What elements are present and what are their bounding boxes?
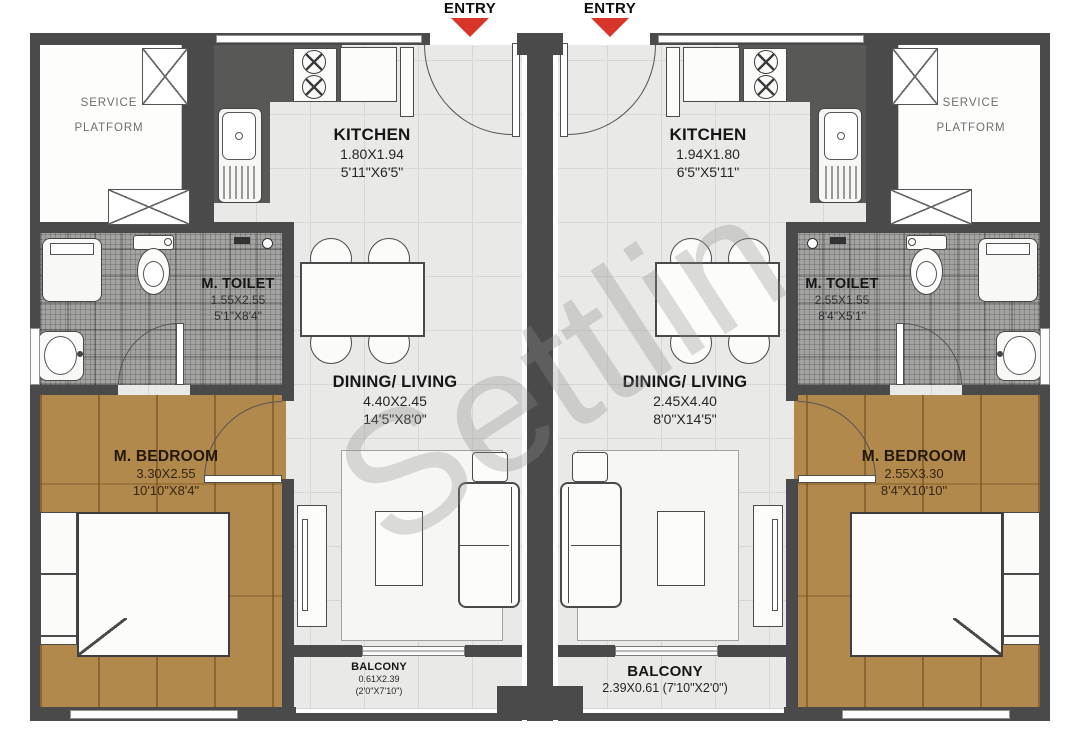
sofa-backrest-line bbox=[511, 487, 512, 603]
entry-arrow-icon bbox=[451, 18, 489, 37]
sofa-icon bbox=[560, 482, 622, 608]
dining-living-label: DINING/ LIVING 2.45X4.40 8'0"X14'5" bbox=[600, 373, 770, 428]
tv-screen bbox=[302, 519, 308, 611]
wall bbox=[40, 385, 118, 395]
balcony-sliding-door-icon bbox=[362, 646, 465, 656]
basin-tap-icon bbox=[997, 351, 1003, 357]
dining-living-label: DINING/ LIVING 4.40X2.45 14'5"X8'0" bbox=[310, 373, 480, 428]
kitchen-platform bbox=[683, 47, 740, 102]
shower-tray-icon bbox=[42, 238, 102, 302]
balcony-sliding-door-icon bbox=[615, 646, 718, 656]
balcony-label: BALCONY 0.61X2.39 (2'0"X7'10") bbox=[322, 661, 436, 697]
balcony-rail bbox=[558, 713, 786, 721]
party-wall bbox=[497, 686, 583, 720]
basin-bowl bbox=[1003, 336, 1036, 375]
stove-icon bbox=[293, 48, 337, 102]
floor-plan: SERVICE PLATFORM KITCHEN 1.80X1.94 5'11"… bbox=[0, 0, 1080, 741]
kitchen-cabinet bbox=[400, 47, 414, 117]
apartment-unit-left: SERVICE PLATFORM KITCHEN 1.80X1.94 5'11"… bbox=[30, 33, 522, 721]
entry-label: ENTRY bbox=[578, 0, 642, 17]
kitchen-label: KITCHEN 1.94X1.80 6'5"X5'11" bbox=[628, 125, 788, 181]
burner-icon bbox=[302, 50, 326, 74]
drain-board bbox=[223, 166, 256, 199]
entry-door-leaf bbox=[512, 43, 520, 137]
tv-unit-icon bbox=[297, 505, 327, 627]
party-wall bbox=[517, 33, 563, 55]
entry-label: ENTRY bbox=[438, 0, 502, 17]
wall bbox=[718, 645, 786, 657]
toilet-label: M. TOILET 1.55X2.55 5'1"X8'4" bbox=[182, 276, 294, 324]
basin-tap-icon bbox=[77, 351, 83, 357]
bed-fold-corner bbox=[79, 618, 127, 655]
bed-fold-corner bbox=[953, 618, 1001, 655]
burner-icon bbox=[302, 75, 326, 99]
shower-tray-icon bbox=[978, 238, 1038, 302]
wall bbox=[465, 645, 522, 657]
towel-rail-icon bbox=[830, 237, 846, 244]
sofa-icon bbox=[458, 482, 520, 608]
wall bbox=[798, 385, 890, 395]
bedside-unit-icon bbox=[40, 512, 77, 645]
bedroom-label: M. BEDROOM 2.55X3.30 8'4"X10'10" bbox=[812, 448, 1016, 500]
coffee-table-icon bbox=[657, 511, 705, 586]
side-table-icon bbox=[472, 452, 508, 482]
window-icon bbox=[70, 710, 238, 719]
shower-ledge bbox=[986, 243, 1030, 255]
shower-knob-icon bbox=[262, 238, 273, 249]
sink-drain bbox=[837, 132, 845, 140]
dining-table-icon bbox=[300, 262, 425, 337]
wall bbox=[294, 645, 362, 657]
sofa-cushion-line bbox=[460, 545, 509, 546]
shower-knob-icon bbox=[807, 238, 818, 249]
flush-button-icon bbox=[908, 238, 916, 246]
window-icon bbox=[216, 35, 422, 43]
basin-bowl bbox=[44, 336, 77, 375]
party-wall bbox=[527, 33, 553, 721]
entry-arrow-icon bbox=[591, 18, 629, 37]
kitchen-cabinet bbox=[666, 47, 680, 117]
bedroom-label: M. BEDROOM 3.30X2.55 10'10"X8'4" bbox=[64, 448, 268, 500]
kitchen-sink-icon bbox=[218, 108, 262, 203]
wall bbox=[558, 645, 615, 657]
tv-screen bbox=[772, 519, 778, 611]
wall bbox=[190, 385, 282, 395]
wall bbox=[786, 479, 798, 709]
burner-icon bbox=[754, 50, 778, 74]
flush-button-icon bbox=[164, 238, 172, 246]
toilet-label: M. TOILET 2.55X1.55 8'4"X5'1" bbox=[786, 276, 898, 324]
window-icon bbox=[658, 35, 864, 43]
stove-icon bbox=[743, 48, 787, 102]
balcony-label: BALCONY 2.39X0.61 (7'10"X2'0") bbox=[575, 663, 755, 698]
wall bbox=[282, 479, 294, 709]
toilet-bowl-inner bbox=[916, 261, 937, 287]
sink-drain bbox=[235, 132, 243, 140]
service-platform-label: SERVICE PLATFORM bbox=[912, 91, 1030, 142]
dining-table-icon bbox=[655, 262, 780, 337]
apartment-unit-right: SERVICE PLATFORM KITCHEN 1.94X1.80 6'5"X… bbox=[558, 33, 1050, 721]
kitchen-sink-icon bbox=[818, 108, 862, 203]
service-hatch-icon bbox=[108, 189, 190, 225]
kitchen-label: KITCHEN 1.80X1.94 5'11"X6'5" bbox=[292, 125, 452, 181]
tv-unit-icon bbox=[753, 505, 783, 627]
bedside-unit-icon bbox=[1003, 512, 1040, 645]
entry-door-leaf bbox=[560, 43, 568, 137]
sofa-backrest-line bbox=[568, 487, 569, 603]
sofa-cushion-line bbox=[571, 545, 620, 546]
service-hatch-icon bbox=[890, 189, 972, 225]
toilet-bowl-inner bbox=[143, 261, 164, 287]
window-icon bbox=[30, 328, 40, 385]
coffee-table-icon bbox=[375, 511, 423, 586]
shower-ledge bbox=[50, 243, 94, 255]
kitchen-platform bbox=[340, 47, 397, 102]
window-icon bbox=[842, 710, 1010, 719]
burner-icon bbox=[754, 75, 778, 99]
drain-board bbox=[824, 166, 857, 199]
window-icon bbox=[1040, 328, 1050, 385]
service-platform-label: SERVICE PLATFORM bbox=[50, 91, 168, 142]
wall bbox=[962, 385, 1040, 395]
balcony-rail bbox=[294, 713, 522, 721]
towel-rail-icon bbox=[234, 237, 250, 244]
side-table-icon bbox=[572, 452, 608, 482]
